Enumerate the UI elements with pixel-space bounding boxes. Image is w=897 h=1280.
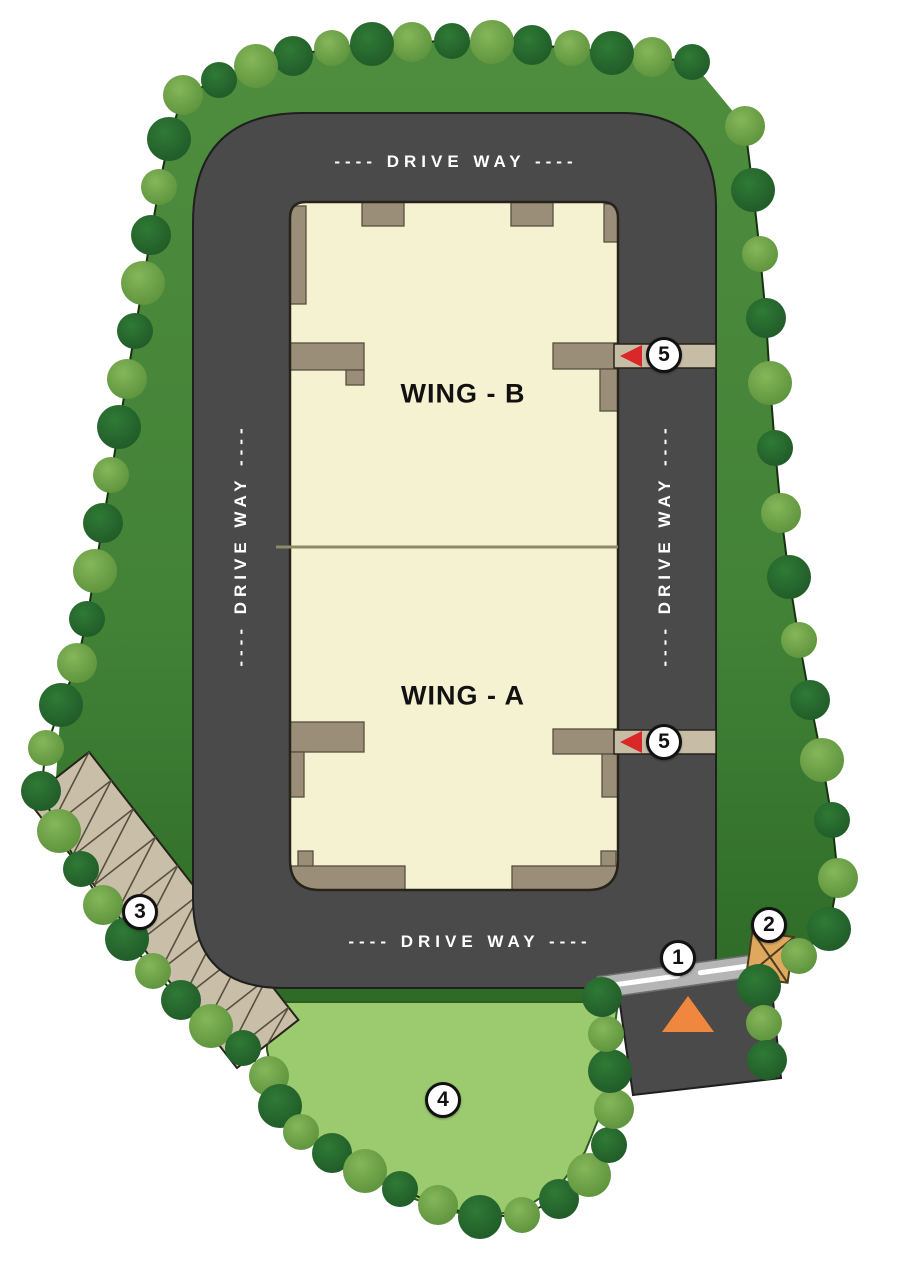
- tree-icon: [37, 809, 81, 853]
- tree-icon: [225, 1030, 261, 1066]
- driveway-label-right: ---- DRIVE WAY ----: [655, 423, 675, 666]
- tree-icon: [73, 549, 117, 593]
- tree-icon: [737, 964, 781, 1008]
- tree-icon: [725, 106, 765, 146]
- tree-icon: [117, 313, 153, 349]
- tree-icon: [512, 25, 552, 65]
- tree-icon: [746, 1005, 782, 1041]
- tree-icon: [748, 361, 792, 405]
- tree-icon: [747, 1040, 787, 1080]
- marker-4-lawn: 4: [425, 1082, 461, 1118]
- tree-icon: [757, 430, 793, 466]
- tree-icon: [554, 30, 590, 66]
- tree-icon: [590, 31, 634, 75]
- tree-icon: [582, 977, 622, 1017]
- driveway-label-bottom: ---- DRIVE WAY ----: [348, 932, 591, 952]
- wing-a-label: WING - A: [401, 681, 525, 712]
- tree-icon: [594, 1089, 634, 1129]
- tree-icon: [746, 298, 786, 338]
- tree-icon: [674, 44, 710, 80]
- tree-icon: [107, 359, 147, 399]
- tree-icon: [28, 730, 64, 766]
- tree-icon: [63, 851, 99, 887]
- tree-icon: [588, 1049, 632, 1093]
- tree-icon: [767, 555, 811, 599]
- tree-icon: [591, 1127, 627, 1163]
- tree-icon: [93, 457, 129, 493]
- tree-icon: [790, 680, 830, 720]
- tree-icon: [163, 75, 203, 115]
- tree-icon: [781, 622, 817, 658]
- building-footprint: [276, 202, 620, 892]
- tree-icon: [83, 885, 123, 925]
- tree-icon: [131, 215, 171, 255]
- tree-icon: [21, 771, 61, 811]
- tree-icon: [350, 22, 394, 66]
- driveway-label-left: ---- DRIVE WAY ----: [231, 423, 251, 666]
- tree-icon: [470, 20, 514, 64]
- marker-5-wing-b-entrance: 5: [646, 337, 682, 373]
- tree-icon: [588, 1016, 624, 1052]
- tree-icon: [800, 738, 844, 782]
- tree-icon: [392, 22, 432, 62]
- tree-icon: [781, 938, 817, 974]
- tree-icon: [283, 1114, 319, 1150]
- tree-icon: [121, 261, 165, 305]
- tree-icon: [314, 30, 350, 66]
- marker-1-entry-gate: 1: [660, 940, 696, 976]
- tree-icon: [141, 169, 177, 205]
- wing-b-label: WING - B: [401, 379, 526, 410]
- tree-icon: [135, 953, 171, 989]
- tree-icon: [343, 1149, 387, 1193]
- tree-icon: [504, 1197, 540, 1233]
- tree-icon: [382, 1171, 418, 1207]
- tree-icon: [761, 493, 801, 533]
- tree-icon: [731, 168, 775, 212]
- tree-icon: [57, 643, 97, 683]
- tree-icon: [818, 858, 858, 898]
- tree-icon: [807, 907, 851, 951]
- driveway-label-top: ---- DRIVE WAY ----: [334, 152, 577, 172]
- tree-icon: [69, 601, 105, 637]
- marker-3-parking: 3: [122, 894, 158, 930]
- tree-icon: [83, 503, 123, 543]
- tree-icon: [814, 802, 850, 838]
- marker-2-security-cabin: 2: [751, 907, 787, 943]
- tree-icon: [632, 37, 672, 77]
- tree-icon: [39, 683, 83, 727]
- tree-icon: [147, 117, 191, 161]
- tree-icon: [234, 44, 278, 88]
- tree-icon: [434, 23, 470, 59]
- tree-icon: [742, 236, 778, 272]
- tree-icon: [273, 36, 313, 76]
- tree-icon: [97, 405, 141, 449]
- tree-icon: [458, 1195, 502, 1239]
- site-plan: ---- DRIVE WAY ---- ---- DRIVE WAY ---- …: [0, 0, 897, 1280]
- marker-5-wing-a-entrance: 5: [646, 724, 682, 760]
- tree-icon: [201, 62, 237, 98]
- tree-icon: [418, 1185, 458, 1225]
